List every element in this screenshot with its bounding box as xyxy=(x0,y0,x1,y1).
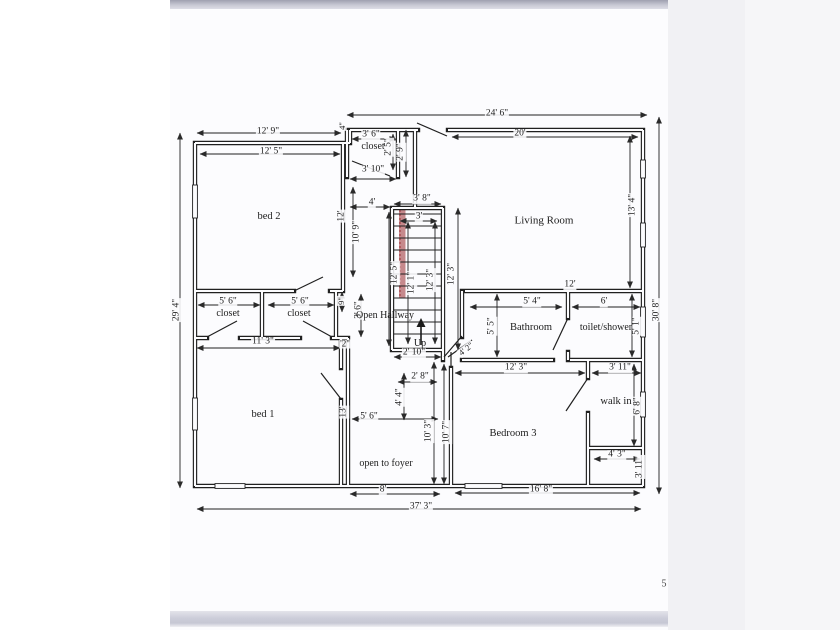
floor-plan-drawing xyxy=(0,0,840,630)
page-number: 5 xyxy=(662,579,667,590)
stair-highlight-strip xyxy=(399,210,406,298)
walls xyxy=(195,130,643,486)
floor-plan-page: 12' 9"12' 5"24' 6"20'3' 6"closet2' 5"2' … xyxy=(0,0,840,630)
